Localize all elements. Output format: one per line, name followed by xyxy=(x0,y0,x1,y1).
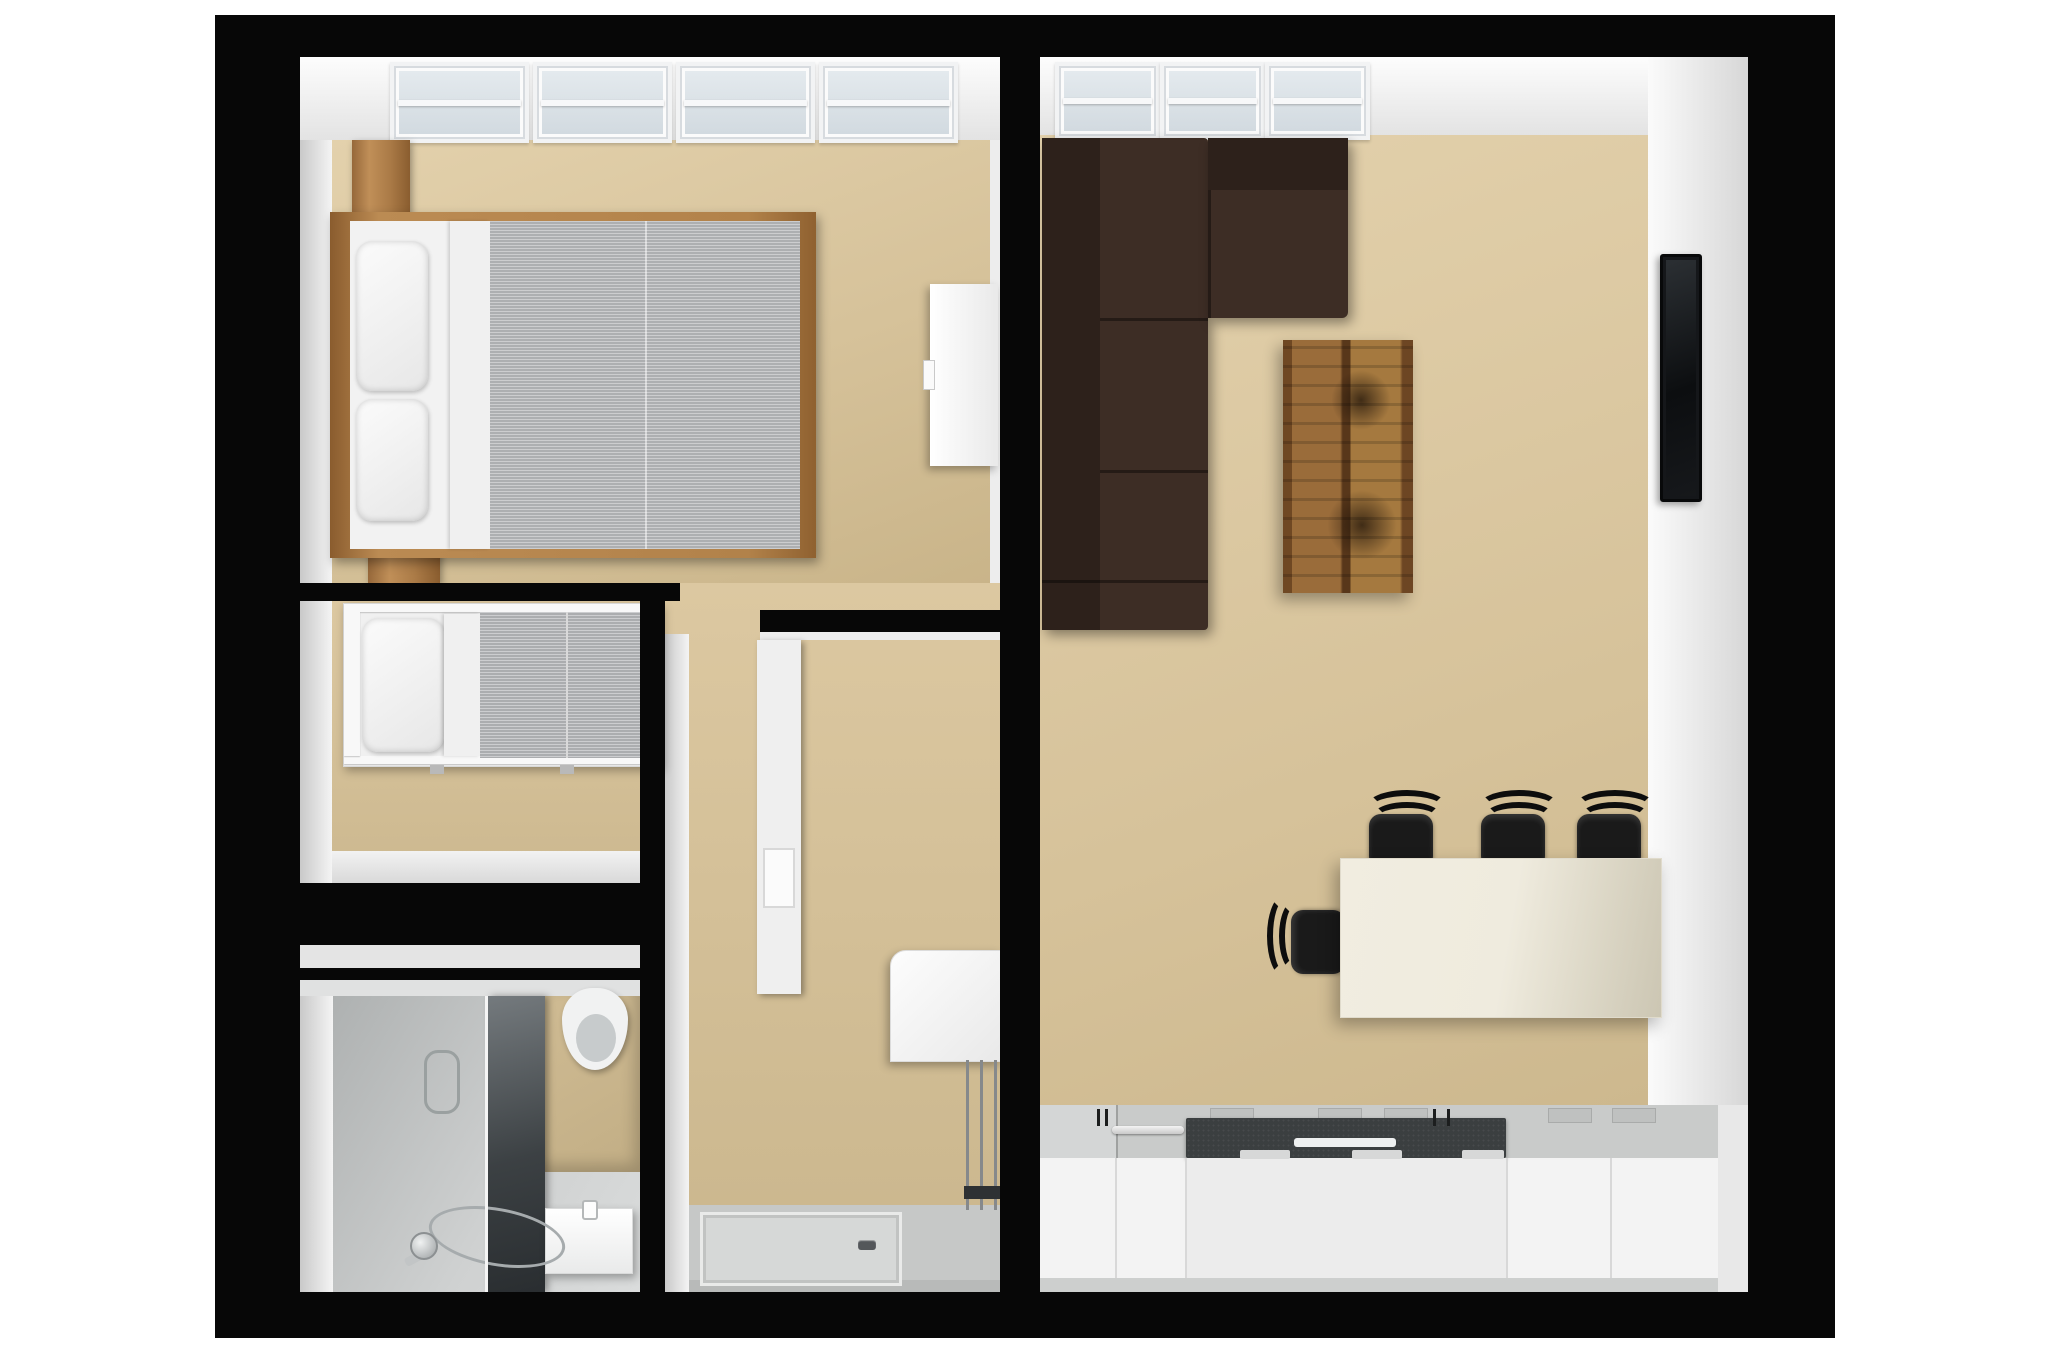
bed-foot xyxy=(560,765,574,774)
kitchen-right-wall-face xyxy=(1718,1105,1748,1292)
living-right-wall-face xyxy=(1648,57,1748,1105)
kidsroom-bottom-wall-face xyxy=(332,851,640,883)
kitchen-back-fitting xyxy=(1548,1108,1592,1123)
single-bed xyxy=(343,603,662,767)
pillow xyxy=(356,241,428,391)
bedroom-left-wall-face xyxy=(300,140,332,583)
outer-wall-bottom xyxy=(215,1292,1835,1338)
tv-screen xyxy=(1660,254,1702,502)
sofa-backrest xyxy=(1042,138,1100,630)
corner-sofa-body xyxy=(1042,138,1208,630)
cabinet-handle xyxy=(1105,1109,1108,1126)
cabinet-handle xyxy=(1097,1109,1100,1126)
bed-rail xyxy=(344,604,661,612)
dresser xyxy=(930,284,998,466)
outer-wall-right xyxy=(1748,15,1835,1338)
shower-door-handle-recess xyxy=(424,1050,460,1114)
bathroom-top-wall xyxy=(300,968,640,980)
washing-machine xyxy=(890,950,1002,1062)
shower-head xyxy=(410,1232,438,1260)
door-plaque xyxy=(763,848,795,908)
sofa-cushion-seam xyxy=(1100,318,1208,321)
skylight-window xyxy=(676,62,815,143)
window-bar xyxy=(684,100,807,106)
shower-glass-frame xyxy=(485,996,488,1292)
sofa-cushion-seam xyxy=(1208,190,1211,318)
window-bar xyxy=(827,100,950,106)
window-bar xyxy=(1063,98,1152,104)
kidsroom-left-wall-face xyxy=(300,601,332,883)
skylight-window xyxy=(533,62,672,143)
wood-knot xyxy=(1331,370,1391,430)
cabinet-seam xyxy=(1115,1158,1117,1278)
drawer-handle-slot xyxy=(1352,1150,1402,1159)
double-bed xyxy=(330,212,816,558)
cabinet-seam xyxy=(1506,1158,1508,1278)
kitchen-cabinet-front-mid xyxy=(1186,1158,1506,1278)
mattress-seam xyxy=(566,612,568,758)
tall-panel-door xyxy=(757,640,801,994)
sofa-cushion-seam xyxy=(1042,580,1208,583)
hallway-left-wall xyxy=(640,601,665,1292)
sofa-backrest xyxy=(1208,138,1348,190)
floorplan-render xyxy=(0,0,2048,1365)
hallway-top-wall-face xyxy=(760,632,1000,640)
cabinet-handle xyxy=(1447,1109,1450,1126)
bed-headboard xyxy=(344,612,360,756)
towel-radiator xyxy=(964,1060,1004,1210)
bed-foot xyxy=(430,765,444,774)
window-bar xyxy=(1273,98,1362,104)
hallway-floor xyxy=(665,583,1000,1205)
dining-chair xyxy=(1267,907,1347,977)
radiator-bracket xyxy=(964,1186,1002,1199)
kitchen-sink xyxy=(1294,1138,1396,1147)
drawer-handle-slot xyxy=(1462,1150,1504,1159)
pillow xyxy=(356,399,428,521)
main-divider-wall xyxy=(1000,15,1040,1292)
bathroom-left-wall-face xyxy=(300,996,333,1292)
corner-sofa-chaise xyxy=(1208,138,1348,318)
cabinet-seam xyxy=(1610,1158,1612,1278)
wood-knot xyxy=(1327,490,1397,560)
sheet-fold xyxy=(444,614,480,756)
wall-ledge xyxy=(300,945,640,968)
skylight-window xyxy=(819,62,958,143)
chair-seat xyxy=(1291,910,1345,974)
sheet-fold xyxy=(450,221,490,549)
outer-wall-left xyxy=(215,15,300,1338)
toilet-bowl xyxy=(576,1014,616,1062)
bedroom-bottom-wall xyxy=(300,583,680,601)
bed-linen xyxy=(350,221,800,549)
sofa-cushion-seam xyxy=(1100,470,1208,473)
cabinet-seam xyxy=(1185,1158,1187,1278)
window-bar xyxy=(398,100,521,106)
kitchen-back-fitting xyxy=(1612,1108,1656,1123)
dresser-handle xyxy=(923,360,935,390)
duvet-seam xyxy=(645,221,647,549)
skylight-window xyxy=(1160,62,1265,140)
skylight-window xyxy=(390,62,529,143)
skylight-window xyxy=(1265,62,1370,140)
window-bar xyxy=(541,100,664,106)
hallway-top-wall xyxy=(760,610,1000,632)
shower-drain xyxy=(858,1240,876,1250)
window-bar xyxy=(1168,98,1257,104)
hallway-left-wall-face xyxy=(665,634,689,1292)
pillow xyxy=(362,618,444,752)
oven-handle xyxy=(1112,1126,1184,1134)
skylight-window xyxy=(1055,62,1160,140)
dining-table xyxy=(1340,858,1662,1018)
kitchen-floor-strip xyxy=(1040,1278,1718,1292)
basin-tap xyxy=(582,1200,598,1220)
drawer-handle-slot xyxy=(1240,1150,1290,1159)
kidsroom-bathroom-wall xyxy=(300,883,640,945)
coffee-table xyxy=(1283,340,1413,593)
cabinet-handle xyxy=(1433,1109,1436,1126)
